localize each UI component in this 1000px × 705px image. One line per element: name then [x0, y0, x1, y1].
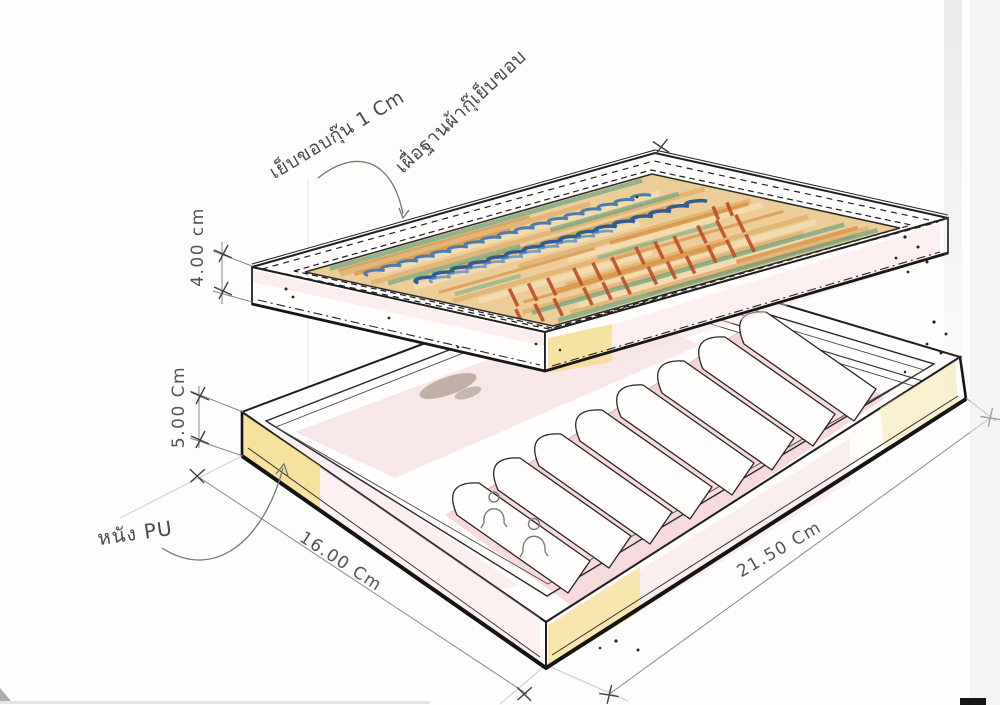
scan-corner-mark — [960, 698, 986, 705]
sketch-page: 4.00 cm 5.00 Cm 16.00 Cm 21.50 Cm เย็บขอ… — [0, 0, 1000, 705]
tray-height-dimension: 5.00 Cm — [169, 366, 189, 448]
lid-height-dimension: 4.00 cm — [188, 207, 208, 287]
sketch-canvas: 4.00 cm 5.00 Cm 16.00 Cm 21.50 Cm เย็บขอ… — [0, 0, 1000, 705]
